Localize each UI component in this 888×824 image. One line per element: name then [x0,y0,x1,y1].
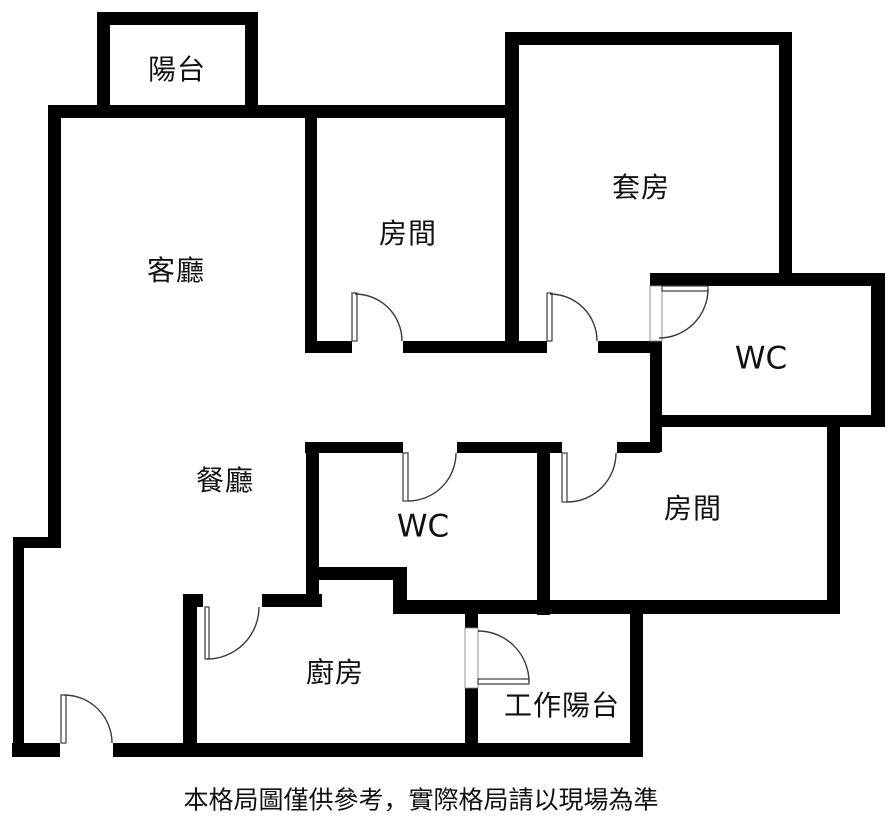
walls [12,12,885,757]
bedroom-right-door [562,453,616,502]
room-label-balcony: 陽台 [148,56,206,84]
room-label-kitchen: 廚房 [306,659,364,687]
room-label-utility-balcony: 工作陽台 [504,692,620,720]
entry-door [61,695,112,743]
bedroom-top-door [352,293,402,341]
room-label-dining-room: 餐廳 [196,467,254,495]
room-label-bedroom-right: 房間 [664,495,722,523]
suite-bathroom-door [650,286,708,341]
disclaimer-text: 本格局圖僅供參考，實際格局請以現場為準 [183,788,658,813]
suite-door [547,293,597,341]
floor-plan-drawing [0,0,888,824]
room-label-bedroom-top: 房間 [379,220,437,248]
room-label-bathroom: WC [397,512,449,543]
bathroom-door [403,453,456,501]
utility-balcony-door [465,628,529,688]
room-label-suite: 套房 [612,174,670,202]
room-label-living-room: 客廳 [147,257,205,285]
floor-plan: 陽台 客廳 房間 套房 WC 餐廳 WC 房間 廚房 工作陽台 本格局圖僅供參考… [0,0,888,824]
kitchen-door [205,607,259,659]
room-label-suite-bathroom: WC [735,344,787,375]
doors [61,286,708,743]
